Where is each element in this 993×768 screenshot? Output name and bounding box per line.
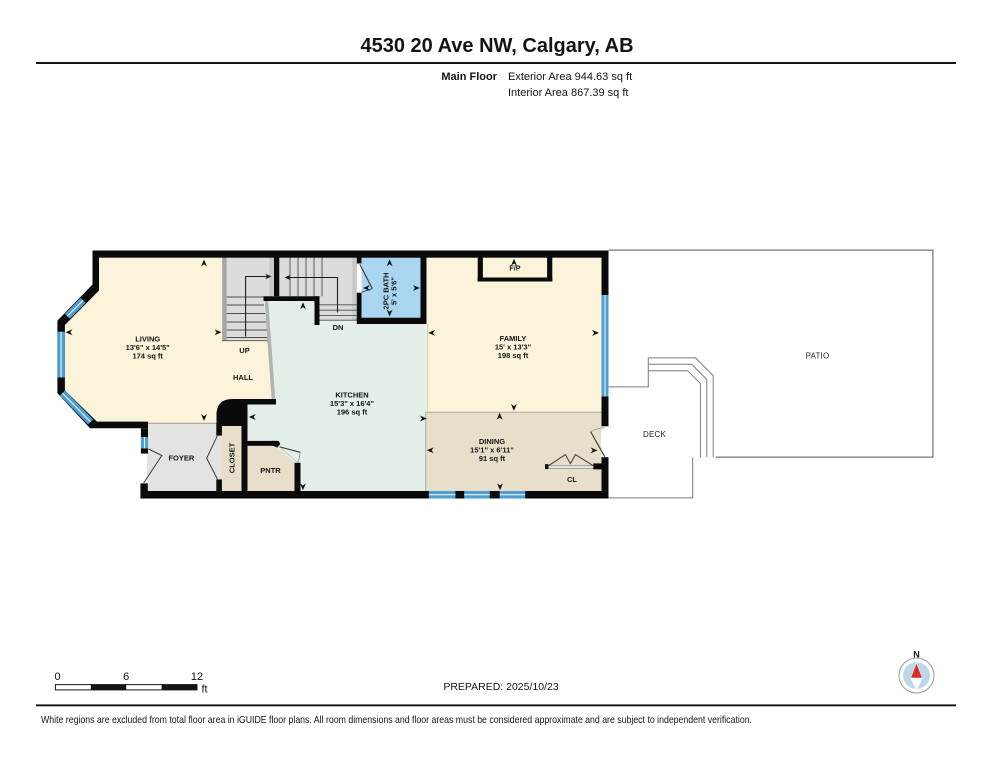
svg-text:DECK: DECK	[643, 430, 666, 439]
svg-text:0: 0	[54, 671, 60, 683]
svg-text:PATIO: PATIO	[806, 351, 830, 360]
svg-text:UP: UP	[239, 346, 249, 355]
svg-text:PNTR: PNTR	[260, 466, 281, 475]
svg-text:12: 12	[191, 671, 203, 683]
svg-text:174 sq ft: 174 sq ft	[132, 352, 163, 361]
svg-text:6: 6	[123, 671, 129, 683]
svg-text:196 sq ft: 196 sq ft	[337, 408, 368, 417]
svg-text:F/P: F/P	[509, 264, 520, 273]
svg-text:Main Floor: Main Floor	[441, 71, 497, 83]
svg-text:CLOSET: CLOSET	[228, 442, 237, 473]
svg-text:CL: CL	[567, 475, 577, 484]
svg-text:White regions are excluded fro: White regions are excluded from total fl…	[41, 715, 752, 726]
svg-text:Exterior Area 944.63 sq ft: Exterior Area 944.63 sq ft	[508, 71, 632, 83]
svg-text:4530 20 Ave NW, Calgary, AB: 4530 20 Ave NW, Calgary, AB	[360, 35, 633, 57]
svg-text:ft: ft	[202, 684, 208, 696]
svg-text:PREPARED: 2025/10/23: PREPARED: 2025/10/23	[443, 681, 559, 693]
svg-text:198 sq ft: 198 sq ft	[498, 351, 529, 360]
svg-text:FOYER: FOYER	[168, 453, 194, 462]
svg-text:HALL: HALL	[233, 373, 253, 382]
svg-text:Interior Area 867.39 sq ft: Interior Area 867.39 sq ft	[508, 87, 628, 99]
svg-text:DN: DN	[333, 323, 344, 332]
svg-text:5' x 5'6": 5' x 5'6"	[390, 277, 399, 305]
svg-text:91 sq ft: 91 sq ft	[479, 454, 506, 463]
